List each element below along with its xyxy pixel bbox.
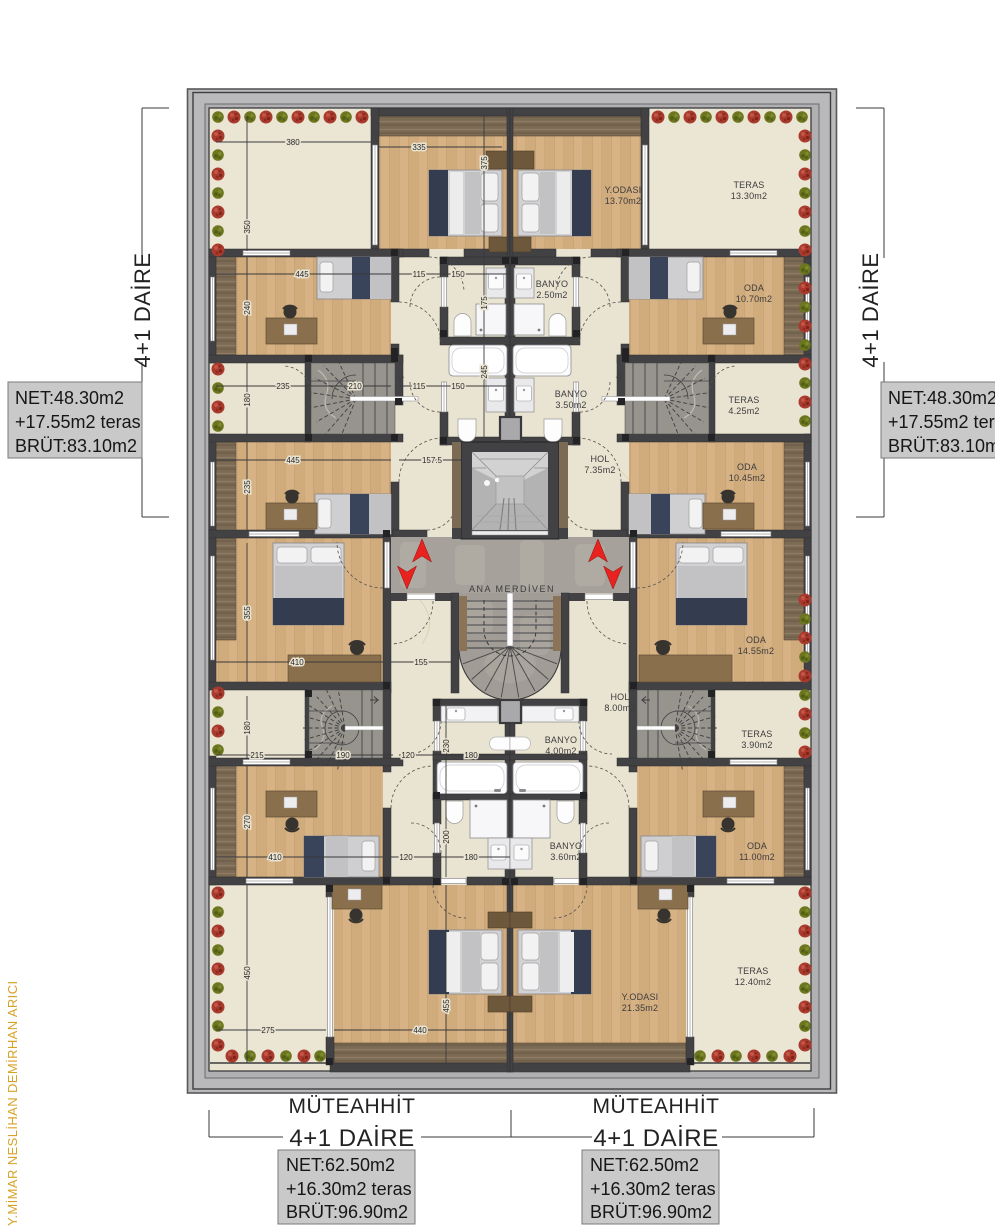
svg-text:13.70m2: 13.70m2 [605,196,641,206]
svg-text:BRÜT:83.10m2: BRÜT:83.10m2 [888,436,995,456]
svg-text:BANYO: BANYO [536,279,569,289]
svg-text:410: 410 [290,658,304,667]
svg-text:ODA: ODA [744,283,764,293]
svg-text:230: 230 [442,739,451,753]
svg-text:BRÜT:96.90m2: BRÜT:96.90m2 [286,1202,408,1222]
svg-text:275: 275 [261,1026,275,1035]
svg-text:BANYO: BANYO [555,389,588,399]
svg-text:445: 445 [286,456,300,465]
svg-text:12.40m2: 12.40m2 [735,977,771,987]
svg-text:ODA: ODA [747,841,767,851]
svg-text:115: 115 [413,270,426,279]
svg-text:4.25m2: 4.25m2 [728,406,759,416]
svg-text:375: 375 [480,156,489,170]
svg-text:120: 120 [401,751,415,760]
svg-text:TERAS: TERAS [728,395,759,405]
svg-text:240: 240 [243,301,252,315]
svg-text:BANYO: BANYO [550,841,583,851]
svg-text:HOL: HOL [590,454,609,464]
svg-text:455: 455 [442,999,451,1013]
svg-text:2.50m2: 2.50m2 [536,290,567,300]
svg-text:14.55m2: 14.55m2 [738,646,774,656]
svg-text:+17.55m2 teras: +17.55m2 teras [888,412,995,432]
svg-text:380: 380 [286,138,300,147]
svg-text:445: 445 [295,270,309,279]
svg-text:150: 150 [451,382,465,391]
svg-text:4+1 DAİRE: 4+1 DAİRE [593,1125,718,1152]
svg-text:Y.ODASI: Y.ODASI [605,185,642,195]
svg-text:10.70m2: 10.70m2 [736,294,772,304]
svg-text:Y.ODASI: Y.ODASI [622,992,659,1002]
svg-text:440: 440 [413,1026,427,1035]
svg-text:4.00m2: 4.00m2 [545,746,576,756]
svg-text:NET:48.30m2: NET:48.30m2 [15,388,124,408]
svg-text:TERAS: TERAS [741,729,772,739]
svg-text:180: 180 [464,751,478,760]
svg-text:245: 245 [480,365,489,379]
svg-text:ODA: ODA [737,462,757,472]
svg-text:335: 335 [412,143,426,152]
svg-text:180: 180 [243,393,252,407]
svg-text:NET:62.50m2: NET:62.50m2 [286,1155,395,1175]
svg-text:270: 270 [243,815,252,829]
svg-text:450: 450 [243,966,252,980]
svg-text:MÜTEAHHİT: MÜTEAHHİT [289,1095,416,1118]
svg-text:10.45m2: 10.45m2 [729,473,765,483]
svg-text:MÜTEAHHİT: MÜTEAHHİT [593,1095,720,1118]
svg-text:150: 150 [451,270,465,279]
svg-text:4+1 DAİRE: 4+1 DAİRE [858,252,883,367]
svg-text:TERAS: TERAS [737,966,768,976]
svg-text:190: 190 [336,751,350,760]
svg-text:HOL: HOL [610,692,629,702]
svg-text:+17.55m2 teras: +17.55m2 teras [15,412,141,432]
svg-text:+16.30m2 teras: +16.30m2 teras [286,1179,412,1199]
svg-text:180: 180 [464,853,478,862]
svg-text:3.50m2: 3.50m2 [555,400,586,410]
svg-text:BRÜT:83.10m2: BRÜT:83.10m2 [15,436,137,456]
svg-text:+16.30m2 teras: +16.30m2 teras [590,1179,716,1199]
svg-text:210: 210 [348,382,362,391]
svg-text:355: 355 [243,606,252,620]
svg-text:7.35m2: 7.35m2 [584,465,615,475]
svg-text:8.00m2: 8.00m2 [604,703,635,713]
svg-text:4+1 DAİRE: 4+1 DAİRE [130,252,155,367]
svg-text:3.90m2: 3.90m2 [741,740,772,750]
svg-text:175: 175 [480,296,489,310]
svg-text:NET:62.50m2: NET:62.50m2 [590,1155,699,1175]
svg-text:BRÜT:96.90m2: BRÜT:96.90m2 [590,1202,712,1222]
svg-text:180: 180 [243,721,252,735]
svg-text:NET:48.30m2: NET:48.30m2 [888,388,995,408]
svg-text:235: 235 [243,480,252,494]
svg-text:200: 200 [442,830,451,844]
svg-text:155: 155 [414,658,428,667]
svg-text:157.5: 157.5 [422,456,443,465]
svg-text:ANA MERDİVEN: ANA MERDİVEN [469,584,555,594]
svg-text:4+1 DAİRE: 4+1 DAİRE [289,1125,414,1152]
svg-text:215: 215 [250,751,264,760]
svg-text:21.35m2: 21.35m2 [622,1003,658,1013]
svg-text:410: 410 [268,853,282,862]
svg-text:TERAS: TERAS [733,180,764,190]
svg-text:235: 235 [276,382,290,391]
svg-text:3.60m2: 3.60m2 [550,852,581,862]
svg-text:ODA: ODA [746,635,766,645]
svg-text:120: 120 [399,853,413,862]
svg-text:13.30m2: 13.30m2 [731,191,767,201]
svg-text::Y.MİMAR NESLİHAN DEMİRHAN ARI: :Y.MİMAR NESLİHAN DEMİRHAN ARICI [5,981,20,1226]
svg-text:11.00m2: 11.00m2 [739,852,775,862]
svg-text:350: 350 [243,220,252,234]
svg-text:115: 115 [413,382,426,391]
svg-text:BANYO: BANYO [545,735,578,745]
